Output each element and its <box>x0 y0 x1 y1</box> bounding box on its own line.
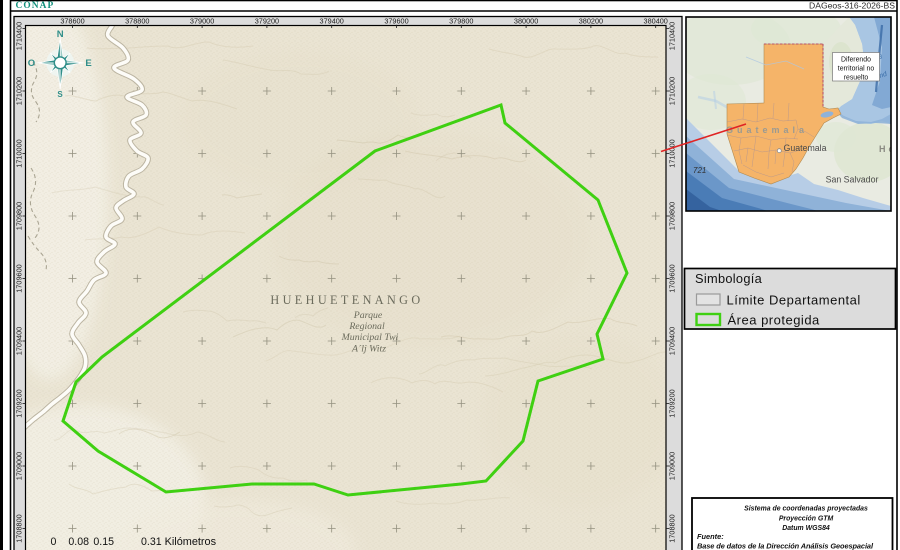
svg-text:DAGeos-316-2026-BS: DAGeos-316-2026-BS <box>809 0 895 10</box>
svg-text:N: N <box>57 29 64 40</box>
svg-text:Área protegida: Área protegida <box>728 313 821 328</box>
svg-text:A´lj Witz: A´lj Witz <box>351 344 386 355</box>
svg-text:1709800: 1709800 <box>15 202 24 230</box>
svg-text:0: 0 <box>51 536 57 548</box>
svg-text:1708800: 1708800 <box>15 514 24 542</box>
svg-text:E: E <box>85 58 91 69</box>
svg-text:Datum WGS84: Datum WGS84 <box>782 525 830 532</box>
svg-text:380200: 380200 <box>579 17 603 26</box>
svg-text:Regional: Regional <box>348 321 385 332</box>
svg-text:0.08: 0.08 <box>68 536 89 548</box>
svg-text:Límite Departamental: Límite Departamental <box>727 293 861 308</box>
svg-text:S: S <box>57 90 63 99</box>
svg-text:Base de datos de la Dirección: Base de datos de la Dirección Análisis G… <box>697 542 874 550</box>
svg-text:378600: 378600 <box>60 17 84 26</box>
svg-text:1709400: 1709400 <box>15 327 24 355</box>
svg-text:379000: 379000 <box>190 17 214 26</box>
svg-text:1710400: 1710400 <box>668 22 677 50</box>
svg-text:379200: 379200 <box>255 17 279 26</box>
svg-text:resuelto: resuelto <box>844 75 869 82</box>
svg-text:1709200: 1709200 <box>15 389 24 417</box>
svg-text:0.15: 0.15 <box>93 536 114 548</box>
svg-text:Parque: Parque <box>353 310 383 321</box>
svg-text:380400: 380400 <box>644 17 668 26</box>
svg-text:O: O <box>28 58 35 69</box>
svg-text:380000: 380000 <box>514 17 538 26</box>
svg-text:Guatemala: Guatemala <box>783 143 826 153</box>
svg-text:1709600: 1709600 <box>15 264 24 292</box>
svg-text:1709000: 1709000 <box>15 452 24 480</box>
svg-text:1710400: 1710400 <box>15 22 24 50</box>
svg-text:379400: 379400 <box>320 17 344 26</box>
svg-text:CONAP: CONAP <box>16 1 55 11</box>
svg-text:HUEHUETENANGO: HUEHUETENANGO <box>270 293 423 307</box>
svg-text:1710000: 1710000 <box>15 139 24 167</box>
svg-text:Municipal Twi: Municipal Twi <box>341 332 399 343</box>
svg-text:0.31: 0.31 <box>141 536 162 548</box>
svg-text:721: 721 <box>693 166 706 175</box>
svg-text:378800: 378800 <box>125 17 149 26</box>
svg-text:territorial no: territorial no <box>838 66 875 73</box>
svg-text:Fuente:: Fuente: <box>697 532 724 541</box>
svg-text:1710200: 1710200 <box>15 77 24 105</box>
svg-text:Sistema de coordenadas proyect: Sistema de coordenadas proyectadas <box>744 506 868 513</box>
svg-text:San Salvador: San Salvador <box>826 175 879 185</box>
svg-text:Proyección GTM: Proyección GTM <box>779 516 834 523</box>
svg-text:379800: 379800 <box>449 17 473 26</box>
svg-text:Simbología: Simbología <box>695 271 763 286</box>
svg-text:Diferendo: Diferendo <box>841 57 871 64</box>
svg-text:379600: 379600 <box>384 17 408 26</box>
svg-text:Kilómetros: Kilómetros <box>165 536 217 548</box>
